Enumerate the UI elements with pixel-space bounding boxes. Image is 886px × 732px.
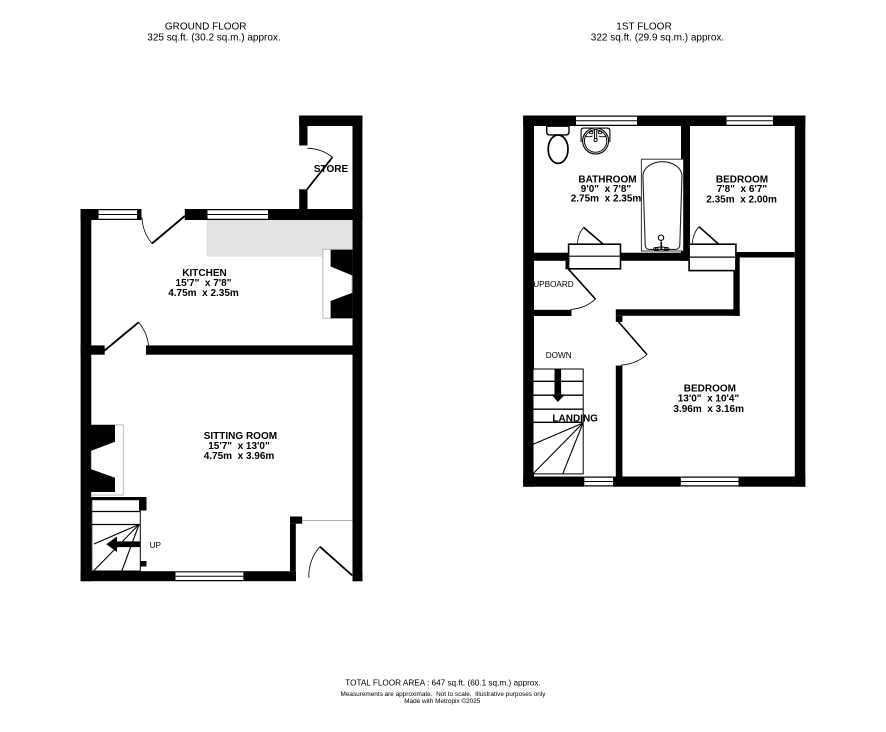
- svg-text:2.75m x 2.35m: 2.75m x 2.35m: [571, 194, 642, 205]
- svg-text:4.75m x 2.35m: 4.75m x 2.35m: [168, 288, 239, 299]
- svg-text:2.35m x 2.00m: 2.35m x 2.00m: [706, 194, 777, 205]
- svg-text:TOTAL FLOOR AREA : 647 sq.ft.: TOTAL FLOOR AREA : 647 sq.ft. (60.1 sq.m…: [345, 679, 541, 688]
- svg-text:Measurements are approximate.: Measurements are approximate. Not to sca…: [341, 691, 547, 698]
- svg-text:UP: UP: [150, 541, 162, 550]
- svg-text:Made with Metropix ©2025: Made with Metropix ©2025: [404, 697, 481, 705]
- svg-text:STORE: STORE: [314, 164, 349, 175]
- svg-text:1ST FLOOR: 1ST FLOOR: [616, 22, 671, 33]
- svg-text:CUPBOARD: CUPBOARD: [527, 280, 573, 289]
- svg-text:GROUND FLOOR: GROUND FLOOR: [165, 22, 247, 33]
- svg-text:LANDING: LANDING: [552, 414, 598, 425]
- svg-text:322 sq.ft. (29.9 sq.m.) approx: 322 sq.ft. (29.9 sq.m.) approx.: [591, 33, 724, 44]
- svg-text:325 sq.ft. (30.2 sq.m.) approx: 325 sq.ft. (30.2 sq.m.) approx.: [147, 33, 280, 44]
- svg-text:3.96m x 3.16m: 3.96m x 3.16m: [673, 404, 744, 415]
- svg-text:DOWN: DOWN: [546, 351, 572, 360]
- svg-text:4.75m x 3.96m: 4.75m x 3.96m: [204, 451, 275, 462]
